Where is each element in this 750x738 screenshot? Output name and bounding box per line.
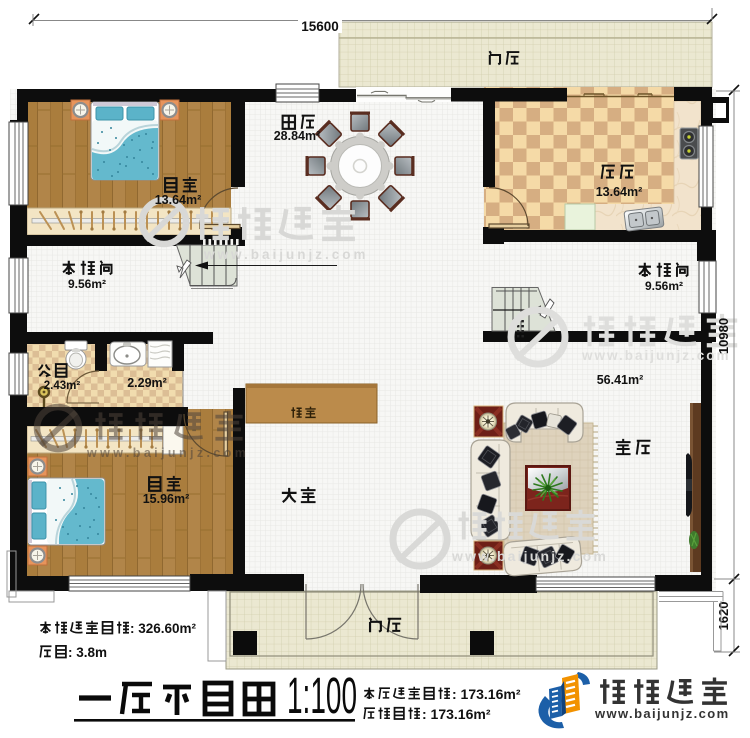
svg-text:56.41m²: 56.41m²: [597, 373, 644, 387]
svg-text:: 173.16m²: : 173.16m²: [422, 706, 491, 722]
svg-text:13.64m²: 13.64m²: [155, 193, 202, 207]
svg-text:10980: 10980: [716, 318, 731, 354]
svg-text:13.64m²: 13.64m²: [596, 185, 643, 199]
svg-text:: 3.8m: : 3.8m: [68, 645, 107, 660]
svg-text:15.96m²: 15.96m²: [143, 492, 190, 506]
svg-text:: 173.16m²: : 173.16m²: [452, 686, 521, 702]
svg-text:1620: 1620: [716, 602, 731, 631]
svg-text:: 326.60m²: : 326.60m²: [130, 621, 197, 636]
svg-text:28.84m²: 28.84m²: [274, 129, 321, 143]
svg-text:www.baijunjz.com: www.baijunjz.com: [594, 706, 730, 721]
svg-text:www.baijunjz.com: www.baijunjz.com: [451, 548, 608, 564]
svg-text:www.baijunjz.com: www.baijunjz.com: [203, 247, 369, 262]
svg-text:9.56m²: 9.56m²: [68, 277, 106, 291]
svg-text:www.baijunjz.com: www.baijunjz.com: [86, 446, 249, 460]
svg-text:9.56m²: 9.56m²: [645, 279, 683, 293]
svg-text:2.43m²: 2.43m²: [44, 380, 81, 392]
svg-text:www.baijunjz.com: www.baijunjz.com: [581, 348, 731, 363]
svg-text:1:100: 1:100: [287, 667, 357, 724]
svg-text:15600: 15600: [301, 19, 339, 34]
svg-text:2.29m²: 2.29m²: [127, 376, 167, 390]
